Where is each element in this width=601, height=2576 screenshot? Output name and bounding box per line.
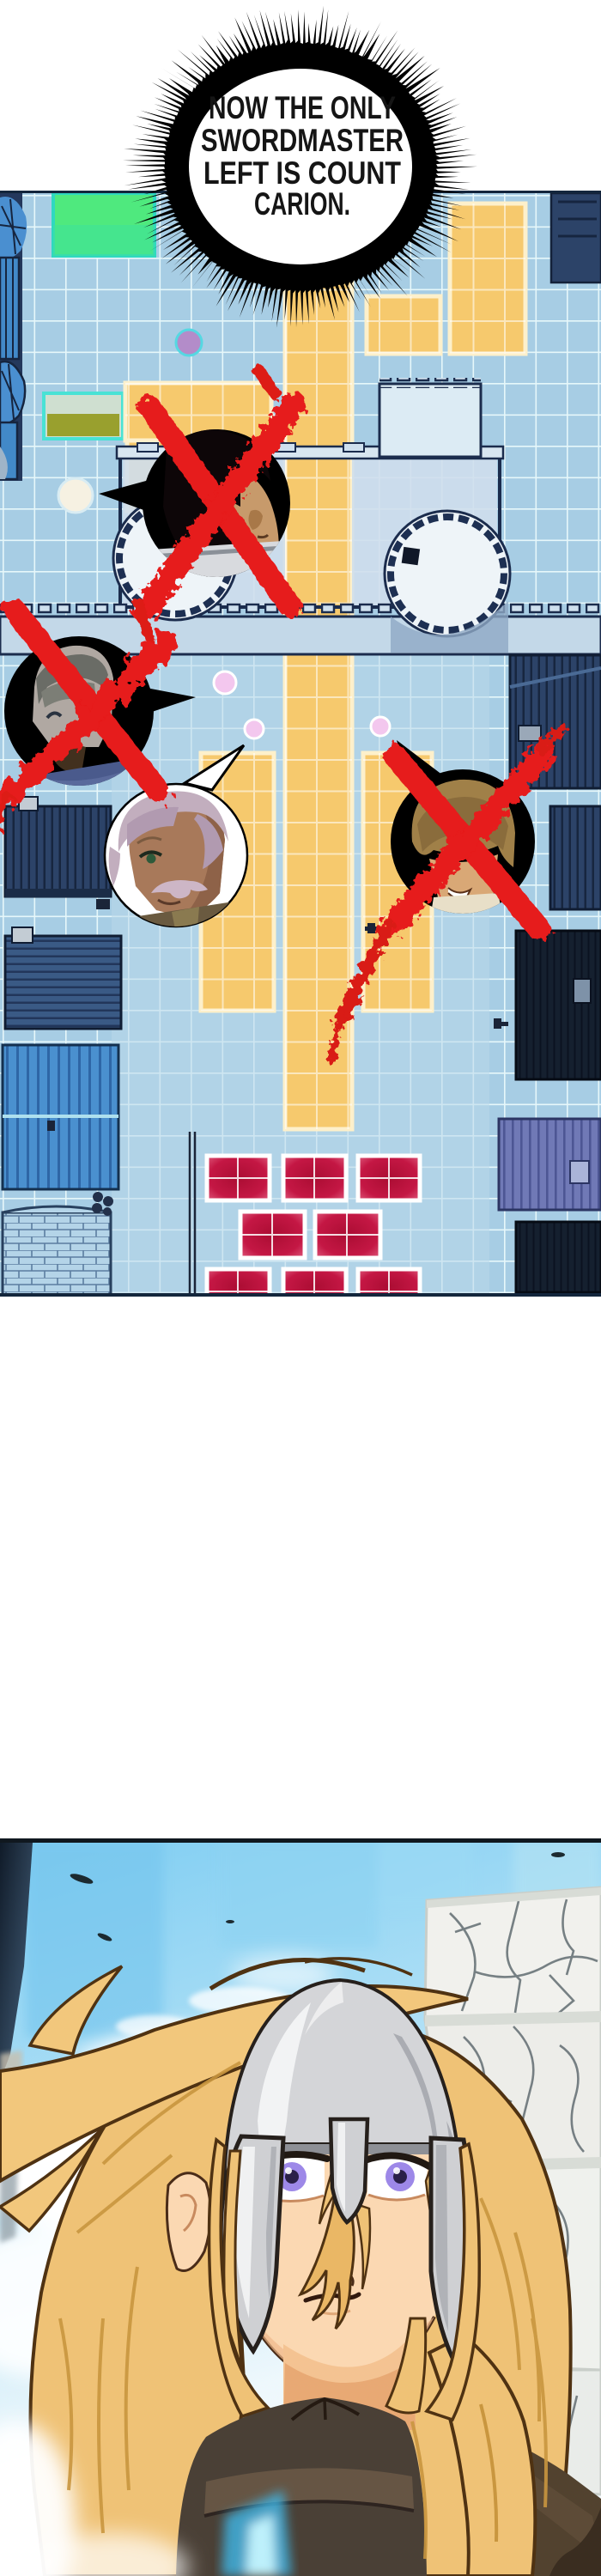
svg-text:CARION.: CARION.: [254, 186, 350, 222]
svg-text:SWORDMASTER: SWORDMASTER: [201, 123, 404, 158]
svg-text:NOW THE ONLY: NOW THE ONLY: [209, 90, 396, 125]
svg-text:LEFT IS COUNT: LEFT IS COUNT: [203, 155, 401, 191]
